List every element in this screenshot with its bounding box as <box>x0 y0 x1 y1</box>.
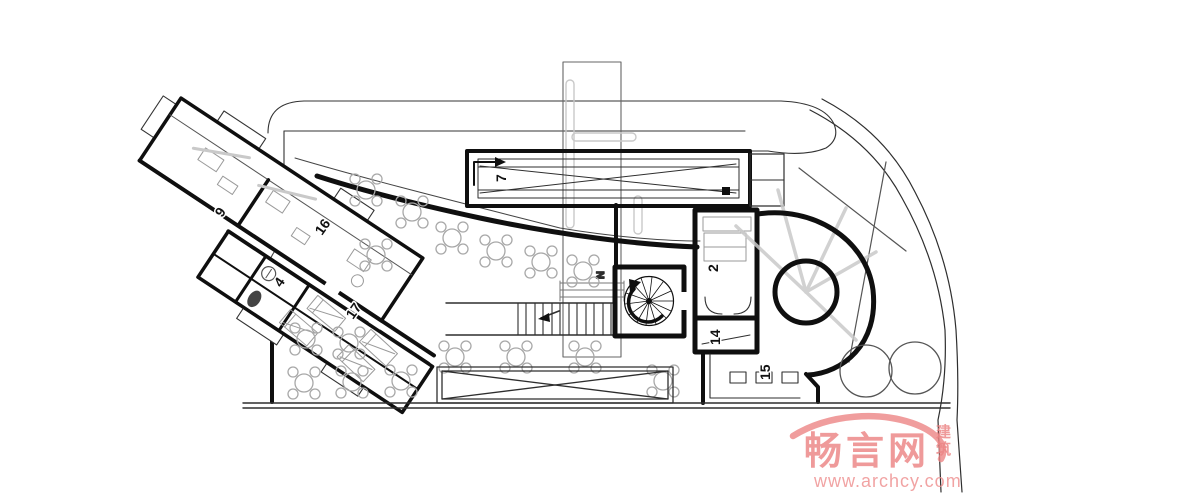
watermark-url: www.archcy.com <box>813 471 962 491</box>
accommodation-wing <box>83 78 486 423</box>
ramp-column <box>722 187 730 195</box>
stair-treads <box>518 303 611 335</box>
tree-1 <box>840 345 892 397</box>
door-arc-left <box>705 297 722 314</box>
site-baseline <box>243 403 950 408</box>
planter-box <box>437 367 673 403</box>
ramp-label: 7 <box>493 174 509 182</box>
bar-counter-outline <box>710 354 800 398</box>
watermark-badge-top: 建 <box>936 423 952 441</box>
watermark: 畅言网 建 筑 www.archcy.com <box>793 416 962 491</box>
core-door-gap <box>679 292 689 310</box>
main-stair: N <box>446 271 624 335</box>
bar-room: 15 <box>703 352 800 403</box>
roof-edge-diagonal-1 <box>799 168 906 251</box>
spiral-arrow-arc <box>629 289 662 322</box>
floor-plan-drawing: 7 N <box>0 0 1200 494</box>
ramp-entry-arrow <box>474 162 495 185</box>
room15-label: 15 <box>757 364 773 380</box>
watermark-badge-bottom: 筑 <box>935 440 951 458</box>
tree-2 <box>889 342 941 394</box>
service-block: 2 14 <box>695 210 757 352</box>
door-arc-right <box>734 297 751 314</box>
room14-label: 14 <box>707 329 723 345</box>
canopy-outer-edge <box>268 101 836 153</box>
spiral-stair-core <box>615 267 689 336</box>
room2-label: 2 <box>705 264 721 272</box>
floor-plan-page: 7 N <box>0 0 1200 494</box>
spiral-center-post <box>646 298 652 304</box>
structure-rods <box>566 80 642 234</box>
lounge-wall-to-base <box>806 374 818 402</box>
room2-closet <box>703 217 751 231</box>
watermark-brand: 畅言网 <box>804 431 930 473</box>
stair-arrowhead <box>538 313 550 322</box>
